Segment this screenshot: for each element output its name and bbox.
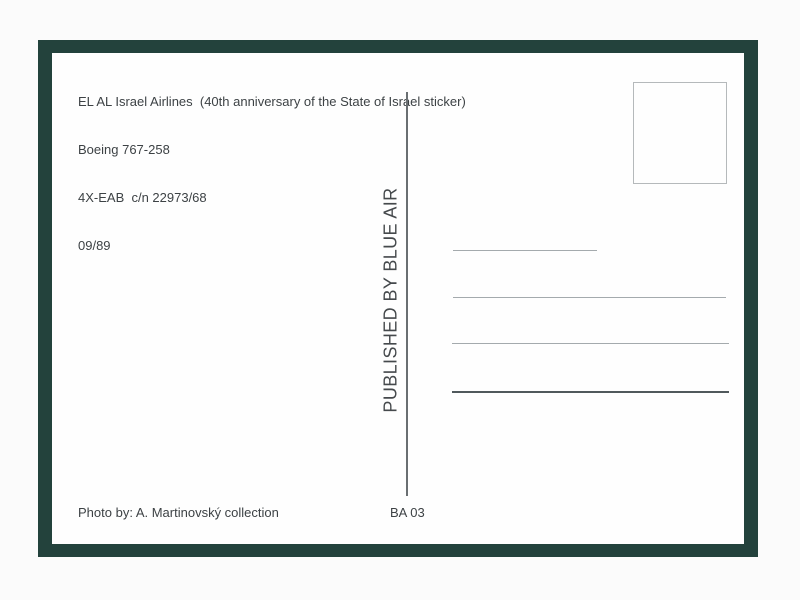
postcard-back: EL AL Israel Airlines (40th anniversary … [52, 53, 744, 544]
address-line-2 [453, 297, 726, 298]
scan-background: EL AL Israel Airlines (40th anniversary … [0, 0, 800, 600]
center-divider-line [406, 92, 408, 496]
publisher-text: PUBLISHED BY BLUE AIR [381, 187, 402, 412]
stamp-box [633, 82, 727, 184]
photo-credit: Photo by: A. Martinovský collection [78, 505, 279, 520]
address-line-3 [452, 343, 729, 344]
catalog-number: BA 03 [390, 505, 425, 520]
address-line-4 [452, 391, 729, 393]
address-line-1 [453, 250, 597, 251]
postcard-frame: EL AL Israel Airlines (40th anniversary … [38, 40, 758, 557]
